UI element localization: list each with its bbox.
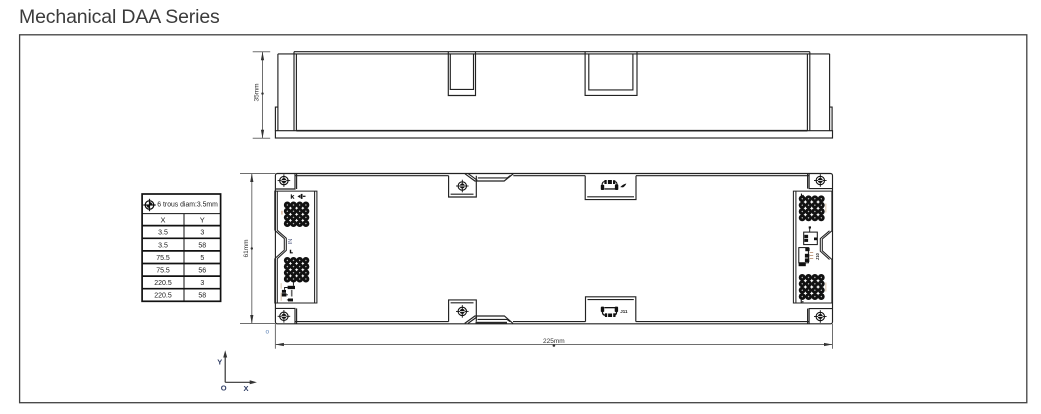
svg-text:Y: Y <box>200 215 205 224</box>
svg-text:225mm: 225mm <box>543 338 565 345</box>
svg-text:35mm: 35mm <box>254 83 261 101</box>
svg-text:X: X <box>243 384 248 393</box>
svg-text:J10: J10 <box>815 252 820 260</box>
svg-text:X: X <box>160 215 165 224</box>
svg-text:75.5: 75.5 <box>156 268 170 275</box>
svg-text:3: 3 <box>200 230 204 237</box>
svg-text:220.5: 220.5 <box>154 280 172 287</box>
svg-text:Y: Y <box>217 357 222 366</box>
svg-text:5: 5 <box>200 255 204 262</box>
svg-text:58: 58 <box>198 242 206 249</box>
svg-text:o: o <box>266 328 270 335</box>
svg-text:6 trous diam:3.5mm: 6 trous diam:3.5mm <box>157 202 218 209</box>
svg-text:75.5: 75.5 <box>156 255 170 262</box>
svg-text:220.5: 220.5 <box>154 293 172 300</box>
svg-text:IN: IN <box>288 239 294 245</box>
svg-text:J11: J11 <box>620 309 628 314</box>
svg-text:56: 56 <box>198 268 206 275</box>
svg-text:3: 3 <box>200 280 204 287</box>
svg-text:58: 58 <box>198 293 206 300</box>
svg-text:3.5: 3.5 <box>158 242 168 249</box>
svg-text:61mm: 61mm <box>243 239 250 257</box>
svg-text:3.5: 3.5 <box>158 230 168 237</box>
svg-text:O: O <box>221 384 227 393</box>
